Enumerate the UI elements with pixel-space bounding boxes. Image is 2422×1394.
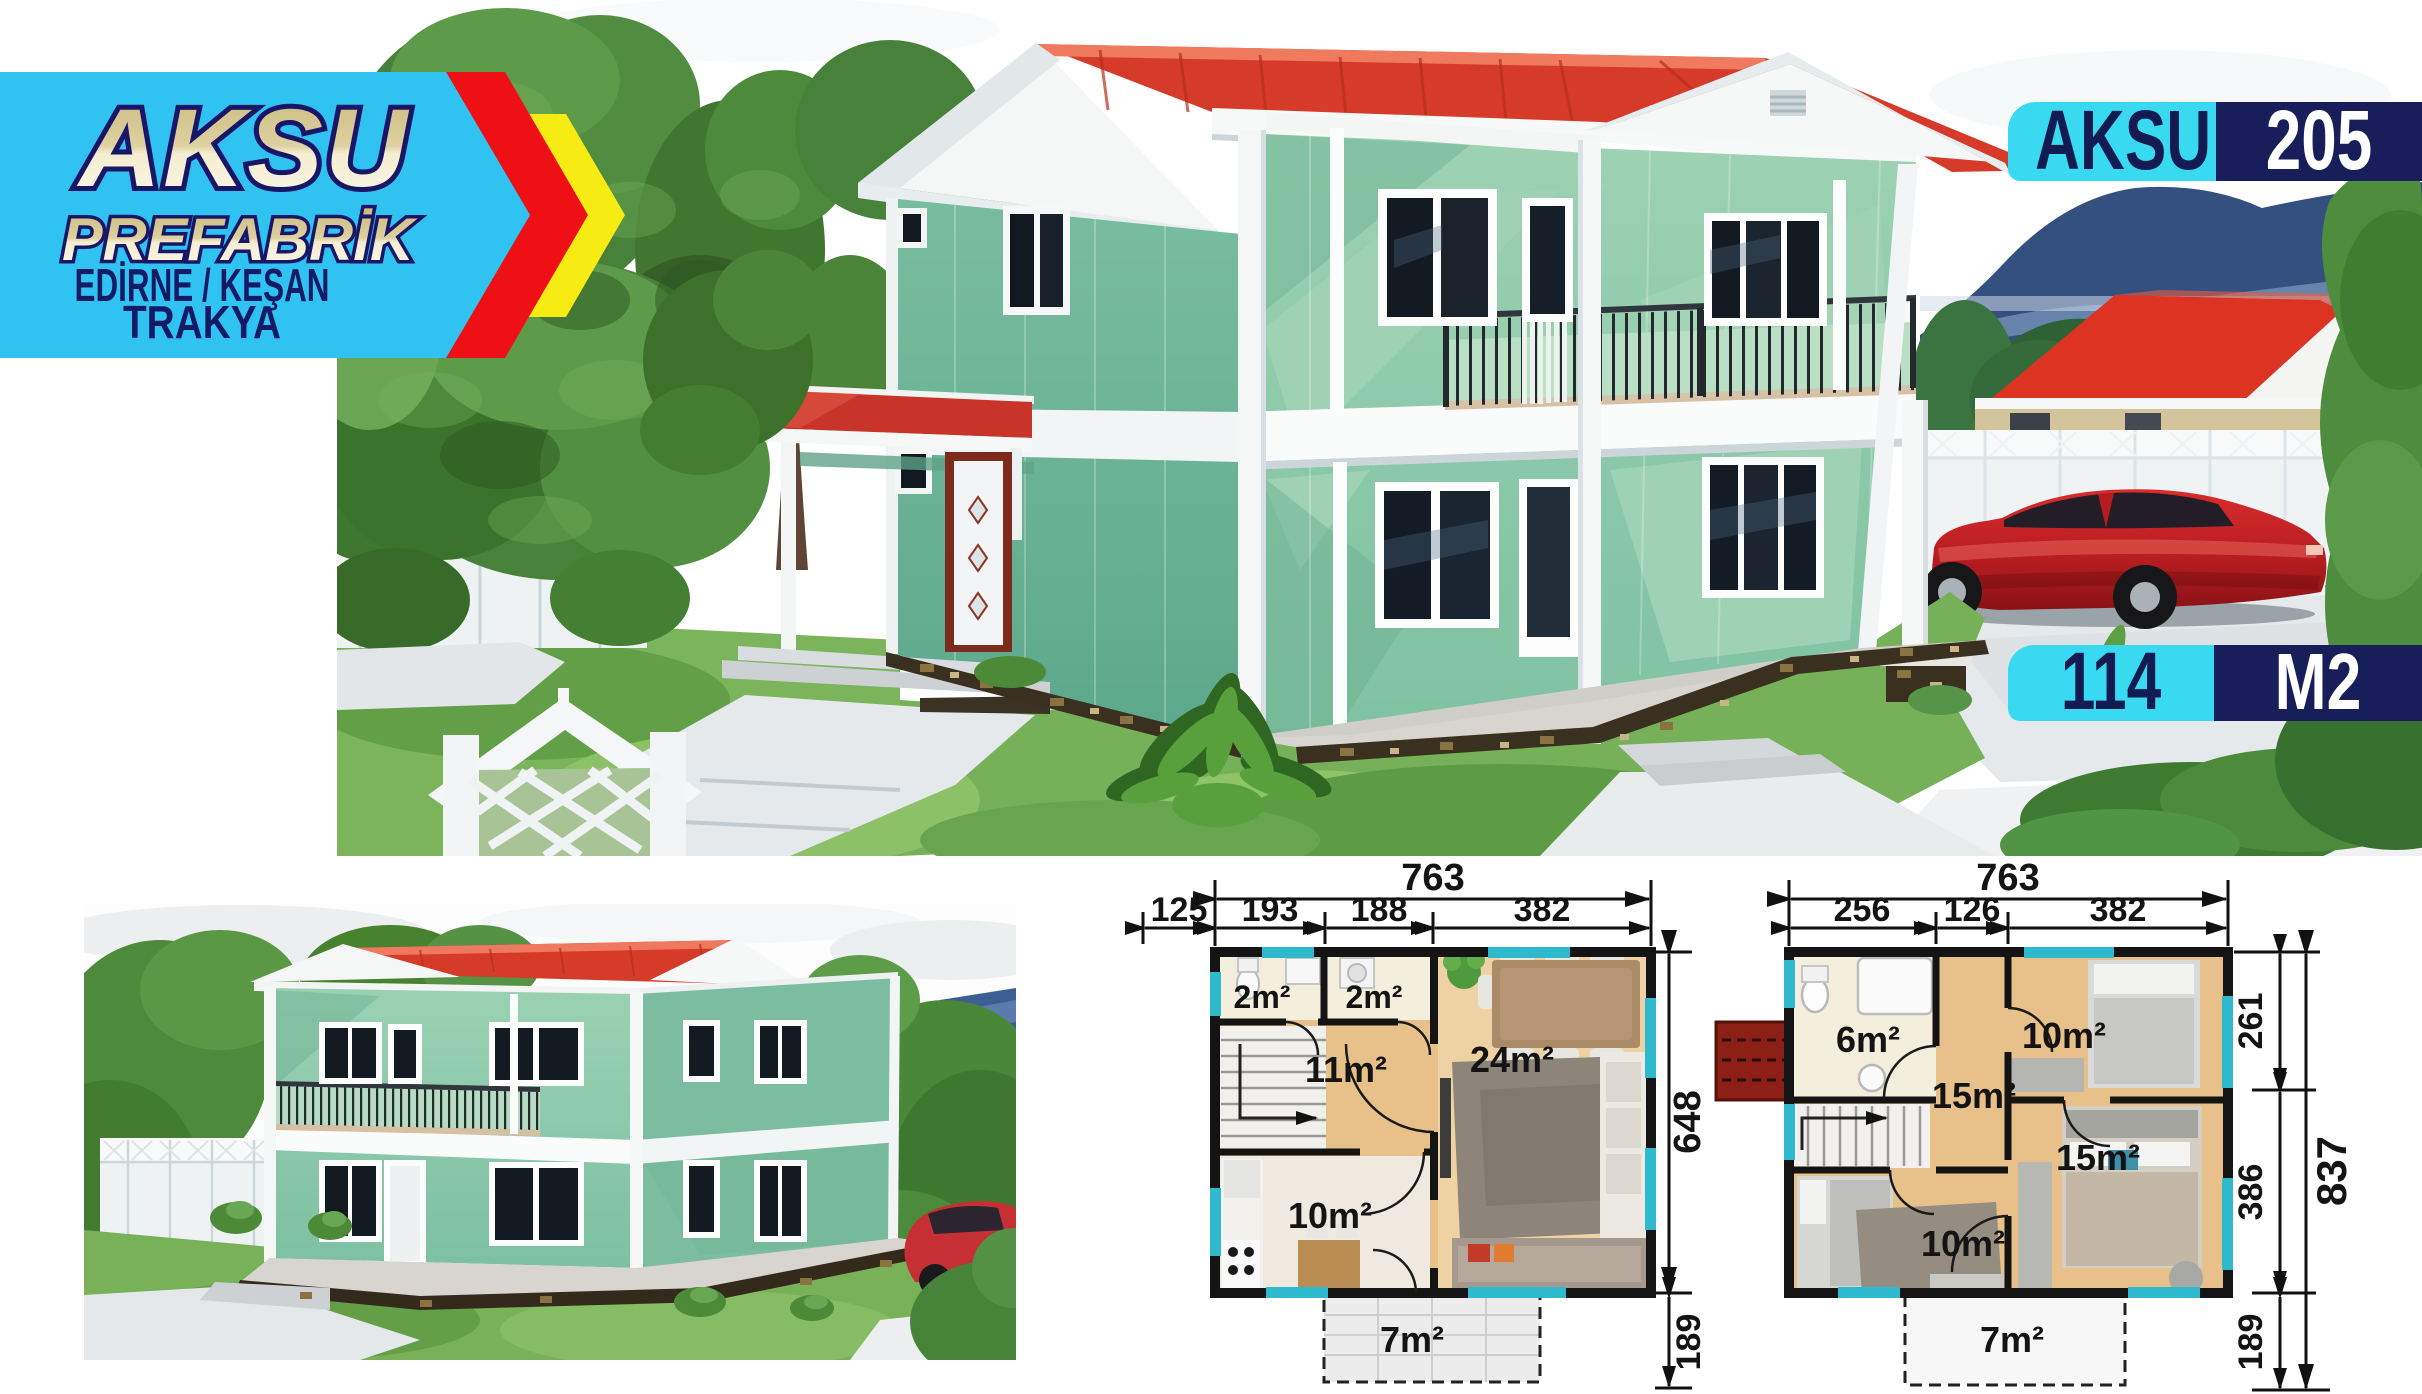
- svg-text:2m²: 2m²: [1346, 979, 1403, 1015]
- svg-text:261: 261: [2232, 993, 2270, 1050]
- svg-text:10m²: 10m²: [2022, 1015, 2106, 1056]
- svg-text:648: 648: [1667, 1090, 1709, 1153]
- svg-text:10m²: 10m²: [1288, 1195, 1372, 1236]
- svg-text:7m²: 7m²: [1380, 1319, 1444, 1360]
- svg-text:15m²: 15m²: [2056, 1137, 2140, 1178]
- svg-text:126: 126: [1944, 891, 2001, 929]
- svg-text:837: 837: [2308, 1136, 2355, 1206]
- svg-text:125: 125: [1151, 891, 1208, 929]
- svg-text:7m²: 7m²: [1980, 1319, 2044, 1360]
- svg-text:189: 189: [2232, 1314, 2270, 1371]
- svg-text:AKSU: AKSU: [76, 87, 410, 210]
- svg-text:TRAKYA: TRAKYA: [123, 296, 281, 348]
- svg-text:2m²: 2m²: [1234, 979, 1291, 1015]
- svg-text:24m²: 24m²: [1470, 1039, 1554, 1080]
- svg-text:256: 256: [1834, 891, 1891, 929]
- svg-text:10m²: 10m²: [1921, 1223, 2005, 1264]
- svg-text:763: 763: [1401, 860, 1464, 899]
- svg-text:6m²: 6m²: [1836, 1019, 1900, 1060]
- svg-text:188: 188: [1351, 891, 1408, 929]
- svg-text:189: 189: [1670, 1314, 1708, 1371]
- svg-text:382: 382: [1514, 891, 1571, 929]
- svg-text:11m²: 11m²: [1305, 1049, 1387, 1090]
- svg-text:382: 382: [2090, 891, 2147, 929]
- svg-text:193: 193: [1242, 891, 1299, 929]
- svg-text:15m²: 15m²: [1932, 1075, 2016, 1116]
- svg-text:386: 386: [2232, 1164, 2270, 1221]
